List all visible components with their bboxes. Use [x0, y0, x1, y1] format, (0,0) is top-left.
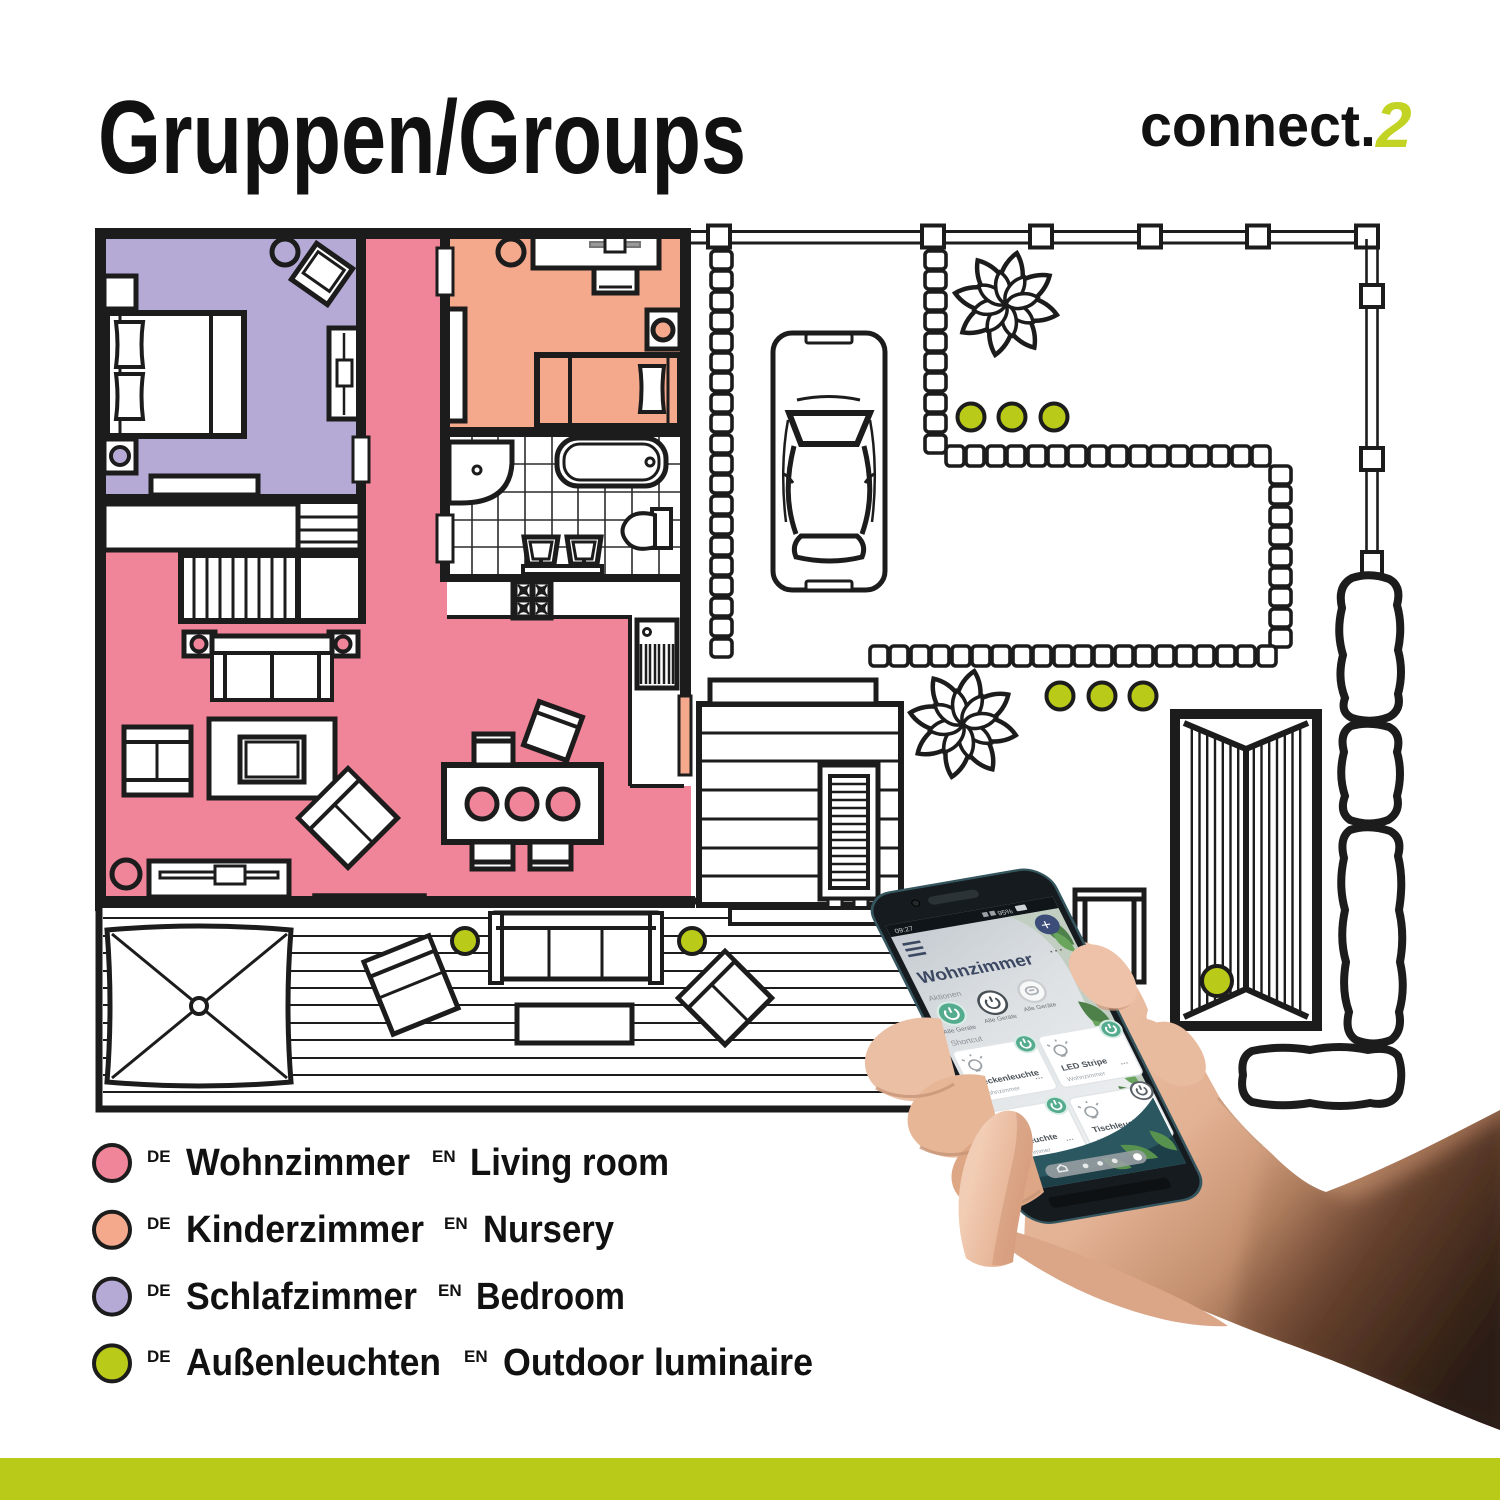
- svg-text:Außenleuchten: Außenleuchten: [186, 1342, 441, 1384]
- svg-text:Nursery: Nursery: [483, 1209, 614, 1251]
- svg-text:Kinderzimmer: Kinderzimmer: [186, 1209, 424, 1251]
- svg-text:EN: EN: [432, 1147, 456, 1166]
- svg-text:EN: EN: [438, 1281, 462, 1300]
- svg-text:Schlafzimmer: Schlafzimmer: [186, 1276, 417, 1318]
- svg-text:DE: DE: [147, 1214, 171, 1233]
- svg-text:EN: EN: [464, 1347, 488, 1366]
- svg-text:Wohnzimmer: Wohnzimmer: [186, 1142, 410, 1184]
- svg-text:Bedroom: Bedroom: [476, 1276, 625, 1318]
- svg-text:2: 2: [1375, 89, 1412, 161]
- svg-text:DE: DE: [147, 1147, 171, 1166]
- svg-text:Outdoor luminaire: Outdoor luminaire: [503, 1342, 813, 1384]
- svg-text:DE: DE: [147, 1281, 171, 1300]
- svg-text:EN: EN: [444, 1214, 468, 1233]
- svg-text:Living room: Living room: [470, 1142, 669, 1184]
- svg-text:connect.: connect.: [1140, 93, 1376, 159]
- svg-text:Gruppen/Groups: Gruppen/Groups: [98, 80, 746, 196]
- svg-text:DE: DE: [147, 1347, 171, 1366]
